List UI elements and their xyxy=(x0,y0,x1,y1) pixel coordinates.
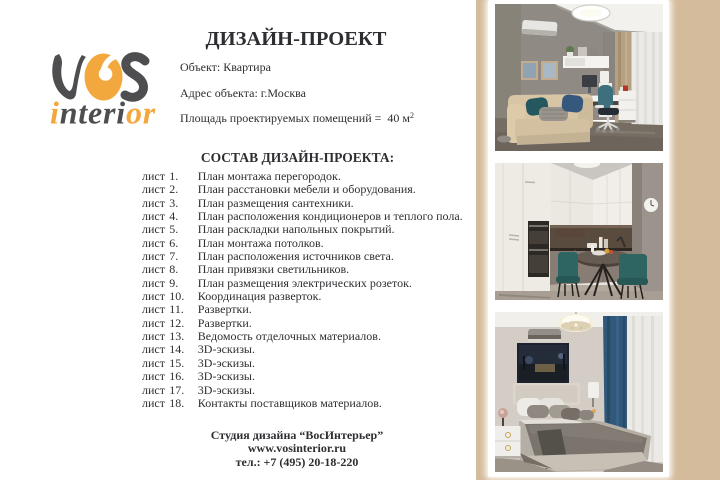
svg-text:interior: interior xyxy=(50,95,156,131)
